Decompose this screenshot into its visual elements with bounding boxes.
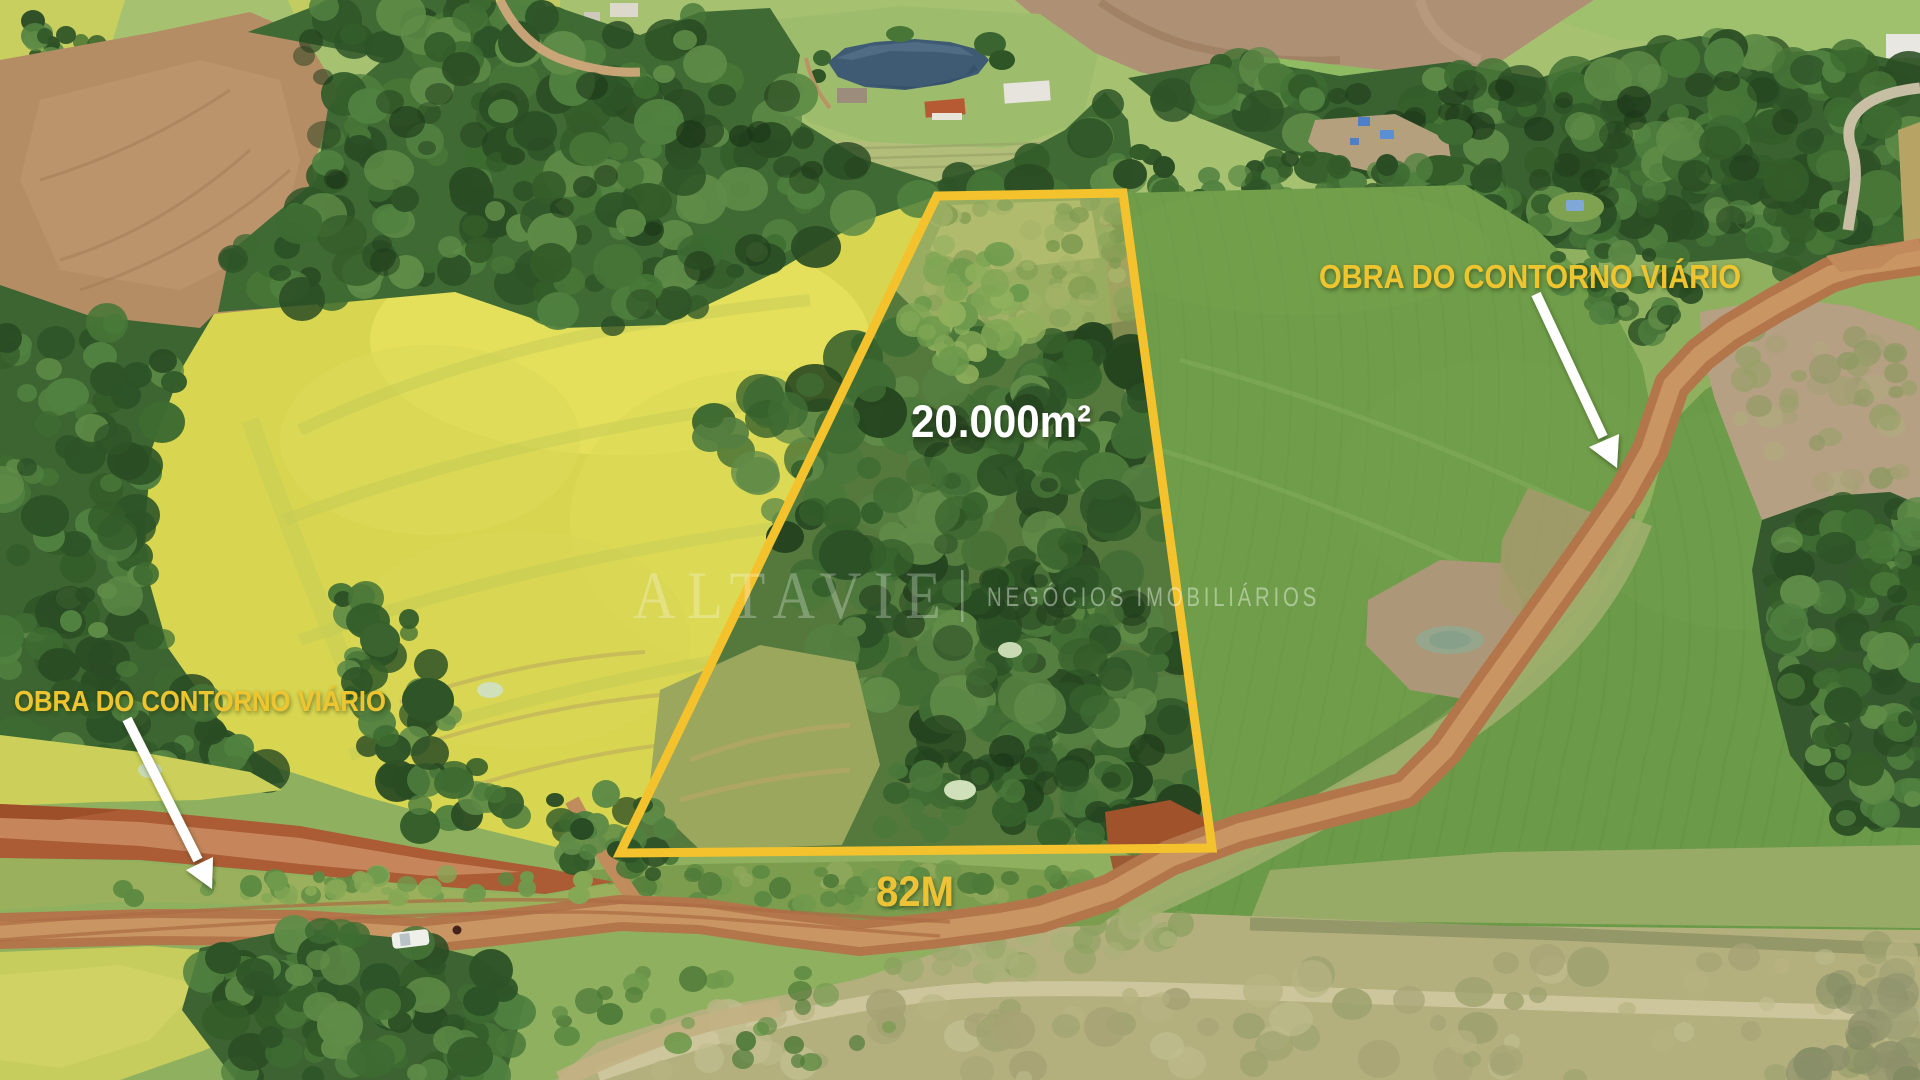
svg-text:OBRA DO CONTORNO VIÁRIO: OBRA DO CONTORNO VIÁRIO	[14, 684, 386, 718]
svg-text:ALTAVIE: ALTAVIE	[633, 557, 953, 633]
svg-text:NEGÓCIOS IMOBILIÁRIOS: NEGÓCIOS IMOBILIÁRIOS	[987, 581, 1320, 612]
svg-text:82M: 82M	[876, 868, 954, 916]
svg-text:OBRA DO CONTORNO VIÁRIO: OBRA DO CONTORNO VIÁRIO	[1319, 258, 1741, 295]
svg-text:20.000m²: 20.000m²	[911, 396, 1091, 447]
